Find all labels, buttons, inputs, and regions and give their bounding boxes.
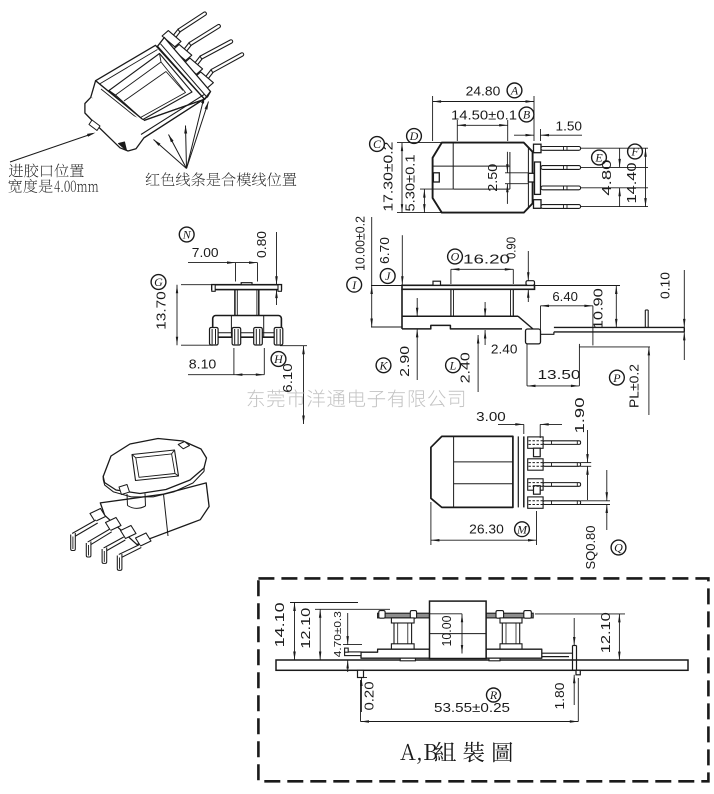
svg-text:0.20: 0.20: [361, 682, 376, 711]
svg-text:1.50: 1.50: [556, 119, 583, 134]
svg-text:6.40: 6.40: [552, 289, 578, 304]
svg-text:7.00: 7.00: [192, 245, 219, 260]
svg-text:5.30±0.1: 5.30±0.1: [403, 155, 418, 212]
svg-text:3.00: 3.00: [476, 409, 506, 424]
svg-text:J: J: [385, 269, 391, 283]
svg-text:26.30: 26.30: [469, 522, 504, 537]
svg-text:14.40: 14.40: [624, 163, 639, 204]
svg-text:D: D: [409, 129, 419, 143]
svg-text:L: L: [449, 359, 457, 373]
svg-text:M: M: [516, 522, 528, 536]
svg-text:17.30±0.2: 17.30±0.2: [381, 142, 396, 212]
svg-text:C: C: [373, 137, 382, 151]
svg-text:E: E: [594, 151, 603, 165]
svg-text:13.70: 13.70: [154, 291, 169, 330]
svg-text:R: R: [489, 688, 498, 702]
svg-text:53.55±0.25: 53.55±0.25: [434, 700, 510, 715]
svg-text:10.00: 10.00: [439, 616, 454, 647]
svg-text:13.50: 13.50: [538, 367, 581, 382]
svg-text:8.10: 8.10: [189, 357, 217, 372]
svg-text:F: F: [630, 145, 639, 159]
svg-text:10.00±0.2: 10.00±0.2: [353, 216, 368, 271]
svg-text:P: P: [612, 371, 621, 385]
svg-text:0.90: 0.90: [504, 237, 519, 259]
svg-text:B: B: [523, 108, 531, 122]
svg-text:1.90: 1.90: [572, 398, 587, 434]
svg-text:2.40: 2.40: [491, 342, 518, 357]
svg-text:N: N: [182, 228, 192, 242]
svg-text:Q: Q: [614, 541, 623, 555]
svg-text:1.80: 1.80: [552, 683, 567, 710]
svg-text:PL±0.2: PL±0.2: [627, 364, 642, 408]
svg-text:G: G: [154, 275, 163, 289]
svg-text:K: K: [378, 359, 388, 373]
svg-text:0.10: 0.10: [657, 272, 672, 299]
svg-text:14.50±0.1: 14.50±0.1: [451, 108, 517, 123]
svg-text:12.10: 12.10: [598, 612, 613, 653]
svg-text:14.10: 14.10: [272, 602, 287, 647]
svg-text:24.80: 24.80: [466, 84, 501, 99]
svg-text:SQ0.80: SQ0.80: [583, 526, 598, 570]
svg-text:2.50: 2.50: [485, 164, 500, 192]
svg-text:H: H: [273, 352, 284, 366]
svg-text:A: A: [510, 84, 519, 98]
svg-text:2.90: 2.90: [397, 346, 412, 377]
svg-text:O: O: [451, 250, 460, 264]
svg-text:4.70±0.3: 4.70±0.3: [332, 611, 344, 657]
svg-text:6.70: 6.70: [377, 237, 392, 264]
svg-text:0.80: 0.80: [254, 231, 269, 258]
svg-text:12.10: 12.10: [298, 608, 313, 649]
svg-text:6.10: 6.10: [280, 363, 295, 392]
